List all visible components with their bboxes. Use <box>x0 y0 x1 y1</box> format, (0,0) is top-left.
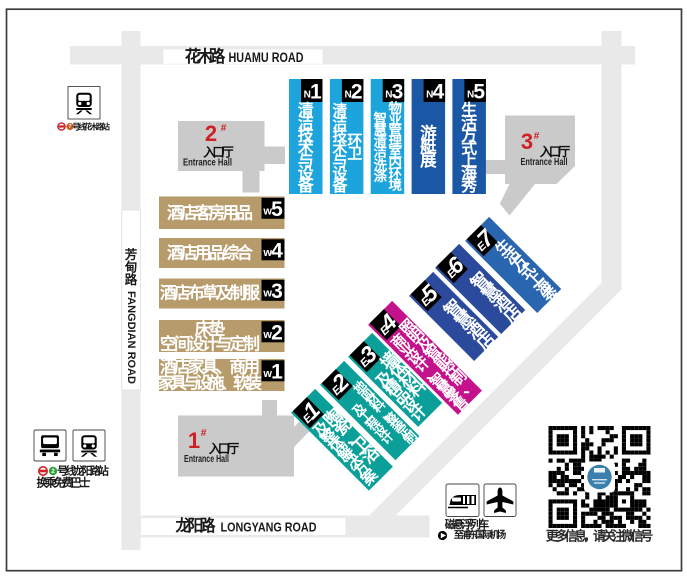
svg-text:境: 境 <box>388 177 402 193</box>
svg-text:Entrance Hall: Entrance Hall <box>184 454 229 465</box>
svg-text:1: 1 <box>271 360 283 383</box>
svg-text:2: 2 <box>205 121 217 146</box>
svg-text:士: 士 <box>79 476 90 490</box>
svg-text:5: 5 <box>473 81 485 104</box>
svg-text:Entrance Hall: Entrance Hall <box>521 157 568 168</box>
svg-text:备: 备 <box>331 177 348 195</box>
svg-text:号: 号 <box>640 529 653 544</box>
svg-text:4: 4 <box>433 81 445 104</box>
svg-text:站: 站 <box>98 463 109 477</box>
svg-text:路: 路 <box>125 272 138 287</box>
svg-text:2: 2 <box>51 468 55 475</box>
svg-text:服: 服 <box>243 284 260 303</box>
svg-text:装: 装 <box>246 373 263 393</box>
svg-text:4: 4 <box>271 239 283 262</box>
svg-text:场: 场 <box>497 528 507 541</box>
svg-text:3: 3 <box>271 280 283 303</box>
svg-text:Entrance Hall: Entrance Hall <box>183 157 232 168</box>
svg-text:车: 车 <box>478 517 489 531</box>
svg-text:合: 合 <box>237 243 254 263</box>
svg-text:7: 7 <box>68 124 71 130</box>
svg-text:备: 备 <box>297 176 315 195</box>
svg-text:制: 制 <box>243 334 260 354</box>
svg-text:#: # <box>201 428 207 439</box>
svg-text:秀: 秀 <box>460 176 477 195</box>
svg-text:路: 路 <box>199 516 216 535</box>
svg-text:#: # <box>534 131 540 142</box>
svg-text:HUAMU ROAD: HUAMU ROAD <box>229 50 304 65</box>
svg-text:品: 品 <box>237 204 254 223</box>
svg-text:卫: 卫 <box>347 146 362 163</box>
svg-text:展: 展 <box>420 151 437 170</box>
svg-text:1: 1 <box>310 81 322 104</box>
svg-text:#: # <box>221 123 227 134</box>
svg-text:5: 5 <box>271 198 283 221</box>
svg-text:2: 2 <box>351 81 363 104</box>
svg-text:3: 3 <box>521 129 533 154</box>
svg-text:路: 路 <box>209 46 226 66</box>
svg-text:涤: 涤 <box>373 168 387 184</box>
svg-text:站: 站 <box>102 121 111 131</box>
svg-text:FANGDIAN ROAD: FANGDIAN ROAD <box>125 291 137 384</box>
svg-text:2: 2 <box>271 321 283 344</box>
svg-text:LONGYANG ROAD: LONGYANG ROAD <box>221 520 317 535</box>
svg-text:1: 1 <box>188 428 200 453</box>
